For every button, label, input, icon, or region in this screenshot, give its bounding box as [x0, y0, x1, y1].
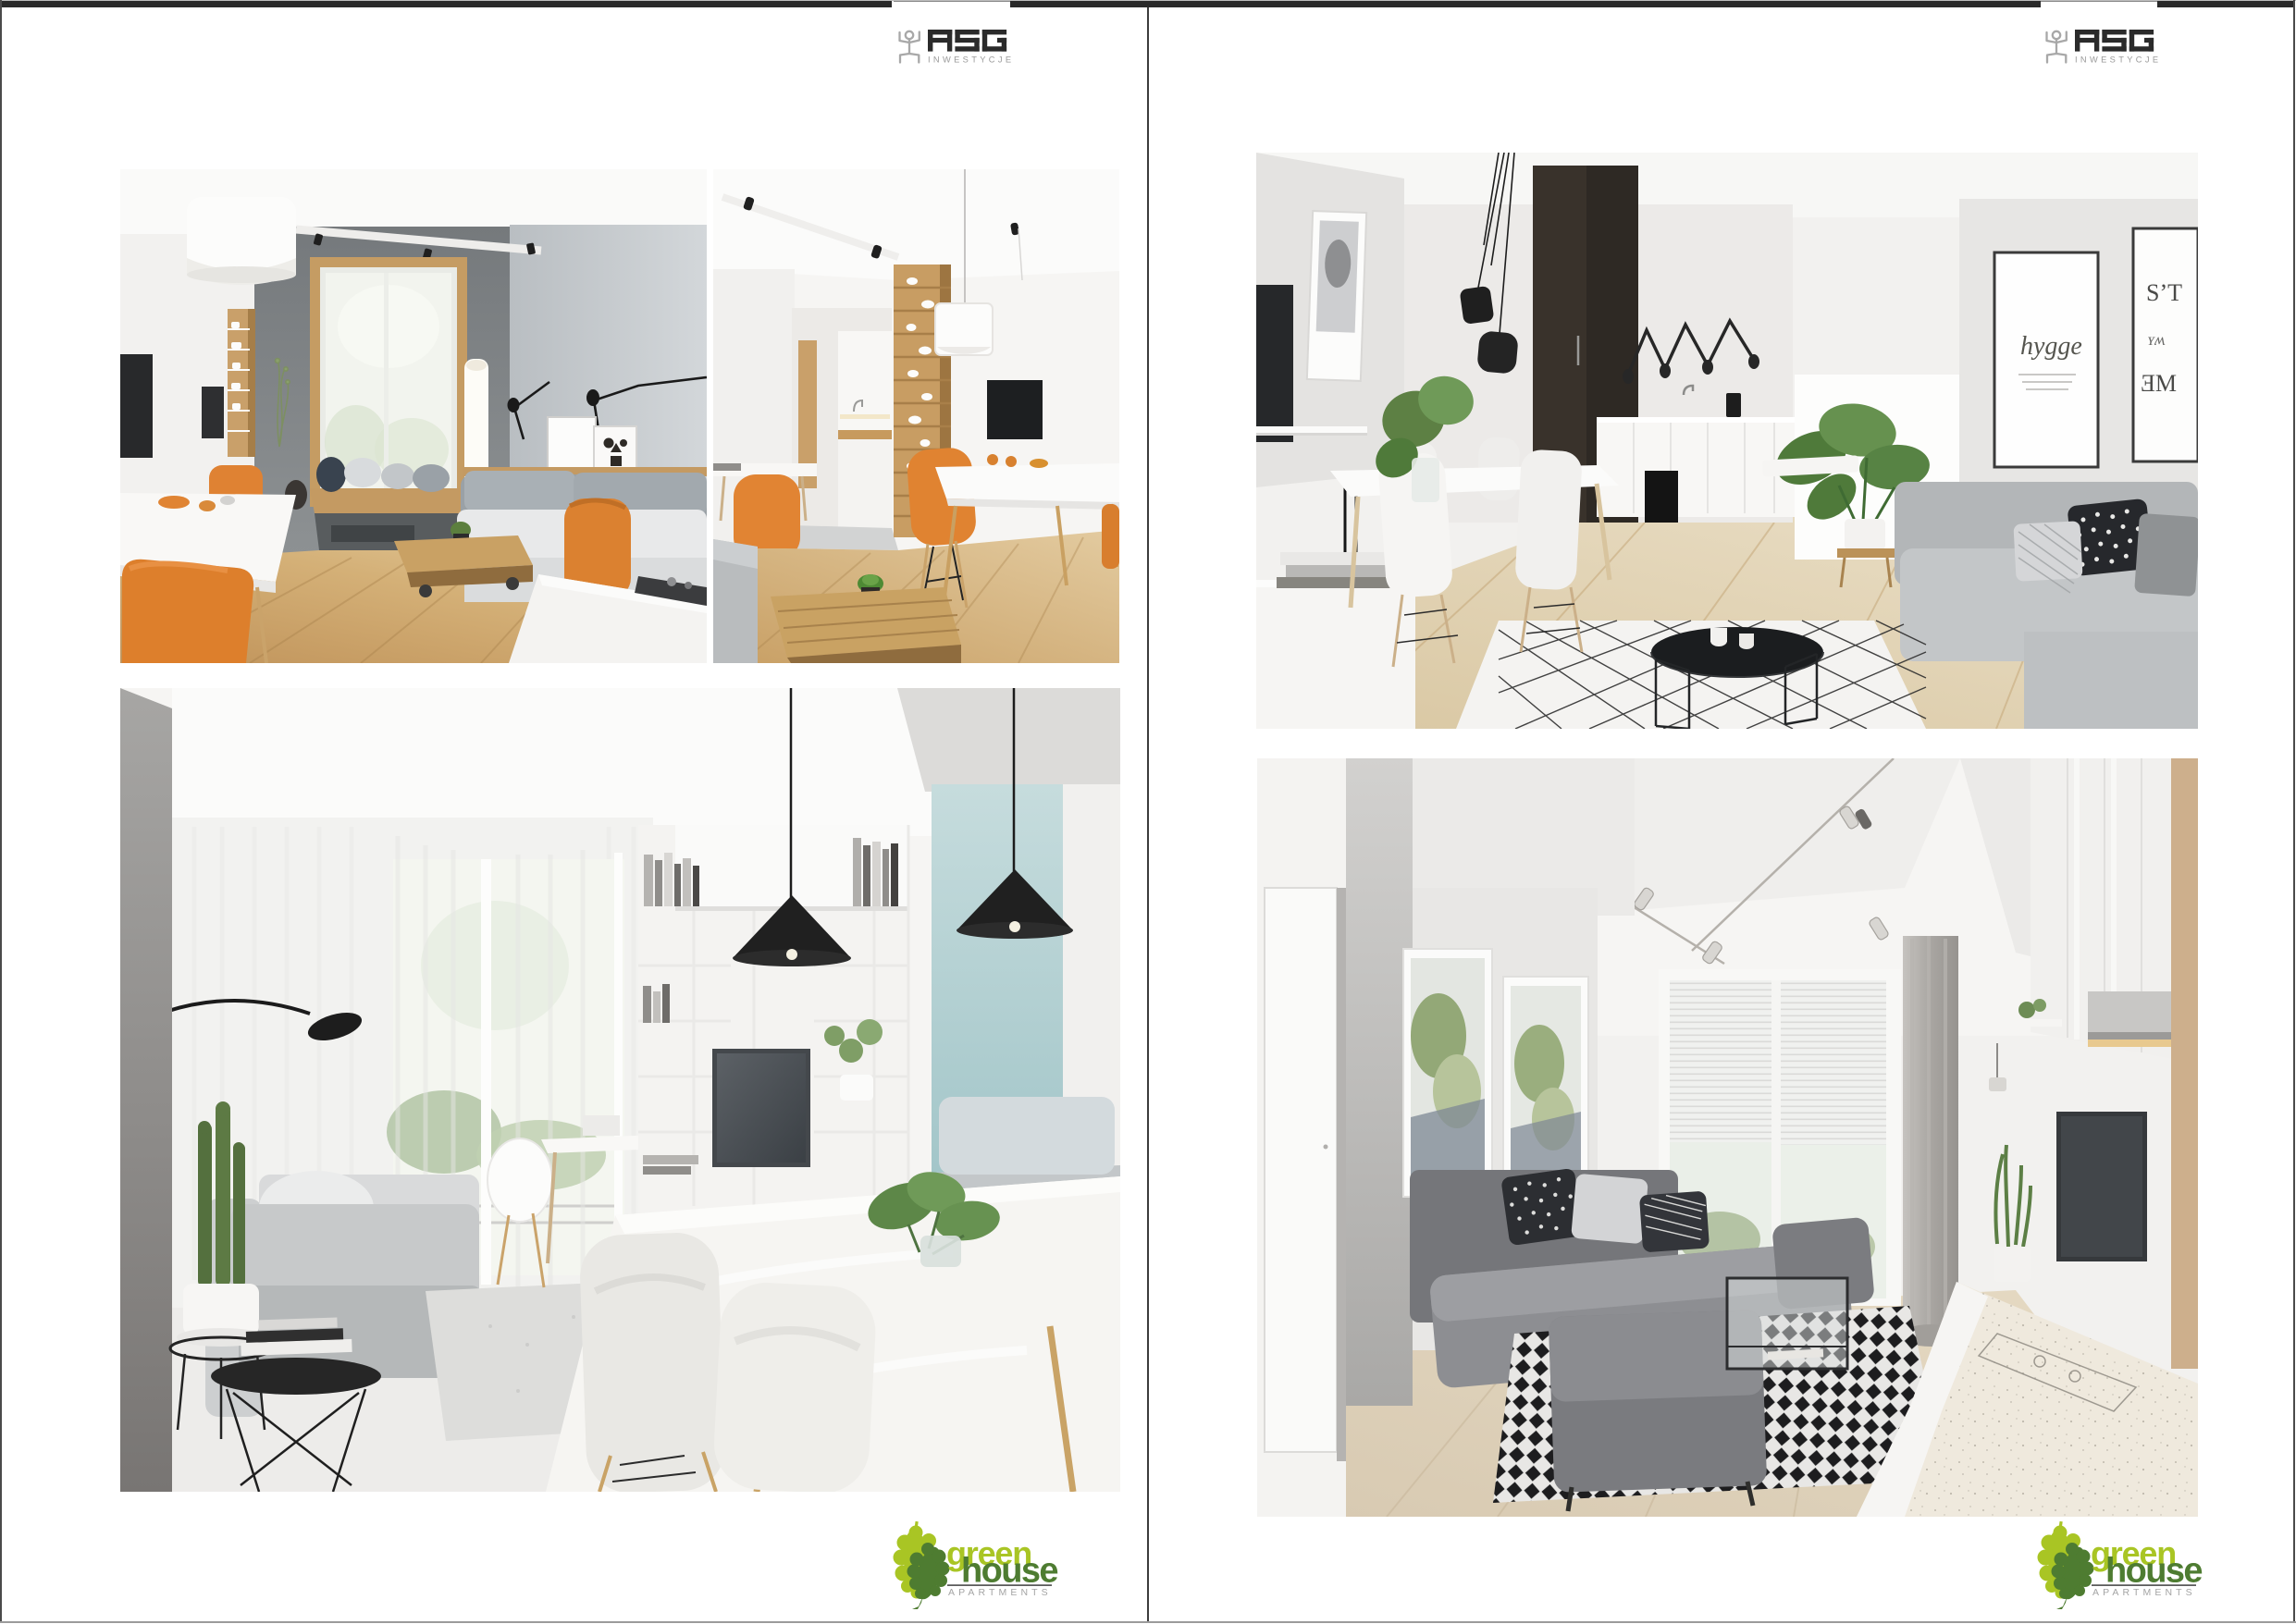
svg-text:ʏʍ: ʏʍ — [2148, 330, 2166, 349]
svg-text:INWESTYCJE: INWESTYCJE — [928, 55, 1011, 65]
svg-text:APARTMENTS: APARTMENTS — [2092, 1587, 2196, 1598]
svg-text:S’T: S’T — [2146, 279, 2182, 306]
svg-text:house: house — [2105, 1552, 2202, 1591]
svg-text:house: house — [961, 1552, 1057, 1591]
svg-text:ƎM: ƎM — [2141, 370, 2177, 397]
svg-text:INWESTYCJE: INWESTYCJE — [2075, 55, 2158, 65]
svg-text:APARTMENTS: APARTMENTS — [948, 1587, 1052, 1598]
svg-text:hygge: hygge — [2020, 332, 2082, 361]
